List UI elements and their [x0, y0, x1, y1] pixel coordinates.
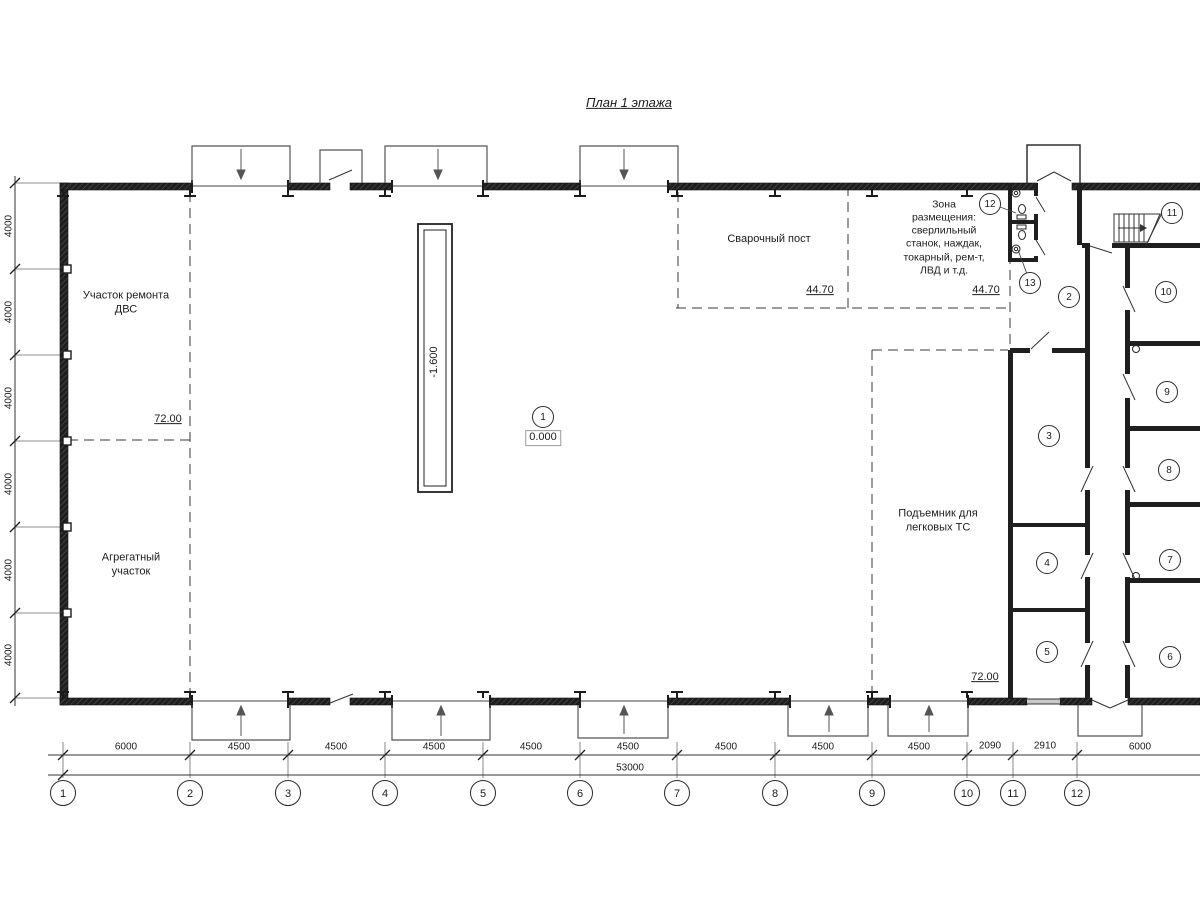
- axis-bubble-11: 11: [1000, 780, 1026, 806]
- dim-left-2: 4000: [4, 301, 15, 323]
- opening-thresholds: [192, 186, 968, 701]
- room-bubble-8: 8: [1158, 459, 1180, 481]
- dim-left-4: 4000: [4, 473, 15, 495]
- dim-11-12: 2910: [1032, 741, 1058, 752]
- room-bubble-5: 5: [1036, 641, 1058, 663]
- dim-7-8: 4500: [713, 742, 739, 753]
- dim-2-3: 4500: [226, 742, 252, 753]
- room-bubble-4: 4: [1036, 552, 1058, 574]
- axis-bubble-9: 9: [859, 780, 885, 806]
- dim-left-5: 4000: [4, 559, 15, 581]
- dim-1-2: 6000: [113, 742, 139, 753]
- opening-jambs: [192, 180, 968, 708]
- zone-engine-repair-label: Участок ремонта ДВС: [83, 289, 169, 317]
- dim-total: 53000: [614, 763, 646, 774]
- axis-bubble-3: 3: [275, 780, 301, 806]
- elevation-aggregate: 72.00: [154, 413, 182, 427]
- floor-plan-page: План 1 этажа Участок ремонта ДВС Агрегат…: [0, 0, 1200, 900]
- room-bubble-12: 12: [979, 193, 1001, 215]
- dim-6-7: 4500: [615, 742, 641, 753]
- dim-5-6: 4500: [518, 742, 544, 753]
- dim-left-6: 4000: [4, 644, 15, 666]
- axis-bubble-4: 4: [372, 780, 398, 806]
- dim-10-11: 2090: [977, 741, 1003, 752]
- elevation-pit: -1.600: [428, 346, 442, 377]
- elevation-main-floor: 0.000: [525, 430, 561, 446]
- dim-8-9: 4500: [810, 742, 836, 753]
- elevation-welding: 44.70: [806, 284, 834, 298]
- room-bubble-9: 9: [1156, 381, 1178, 403]
- axis-bubble-1: 1: [50, 780, 76, 806]
- interior-walls: [1008, 183, 1200, 698]
- room-bubble-10: 10: [1155, 281, 1177, 303]
- room-bubble-11: 11: [1161, 202, 1183, 224]
- plan-title: План 1 этажа: [586, 95, 672, 111]
- column-marks: [57, 190, 973, 698]
- axis-bubble-12: 12: [1064, 780, 1090, 806]
- dim-4-5: 4500: [421, 742, 447, 753]
- room-bubble-2: 2: [1058, 286, 1080, 308]
- elevation-car-lift: 72.00: [971, 671, 999, 685]
- room-bubble-3: 3: [1038, 425, 1060, 447]
- zone-car-lift-label: Подъемник для легковых ТС: [898, 507, 977, 535]
- dim-3-4: 4500: [323, 742, 349, 753]
- dim-9-10: 4500: [906, 742, 932, 753]
- zone-welding-label: Сварочный пост: [727, 233, 810, 247]
- axis-bubble-6: 6: [567, 780, 593, 806]
- zone-placement-label: Зона размещения: сверлильный станок, наж…: [903, 199, 984, 278]
- axis-bubble-2: 2: [177, 780, 203, 806]
- left-dimension-chain: [10, 176, 60, 706]
- gate-canopies: [192, 146, 1142, 740]
- zone-aggregate-label: Агрегатный участок: [102, 551, 160, 579]
- staircase: [1114, 211, 1163, 245]
- room-bubble-6: 6: [1159, 646, 1181, 668]
- dim-12-13: 6000: [1127, 742, 1153, 753]
- dim-left-3: 4000: [4, 387, 15, 409]
- floor-plan-drawing: [0, 0, 1200, 900]
- dim-left-1: 4000: [4, 215, 15, 237]
- vestibule-outline: [1027, 145, 1080, 183]
- room-bubble-7: 7: [1159, 549, 1181, 571]
- axis-bubble-5: 5: [470, 780, 496, 806]
- axis-bubble-7: 7: [664, 780, 690, 806]
- axis-bubble-10: 10: [954, 780, 980, 806]
- room-bubble-1: 1: [532, 406, 554, 428]
- window: [1027, 699, 1060, 704]
- leader-lines: [1000, 207, 1027, 274]
- axis-bubble-8: 8: [762, 780, 788, 806]
- room-bubble-13: 13: [1019, 272, 1041, 294]
- elevation-placement: 44.70: [972, 284, 1000, 298]
- entrance-arrows: [237, 149, 933, 736]
